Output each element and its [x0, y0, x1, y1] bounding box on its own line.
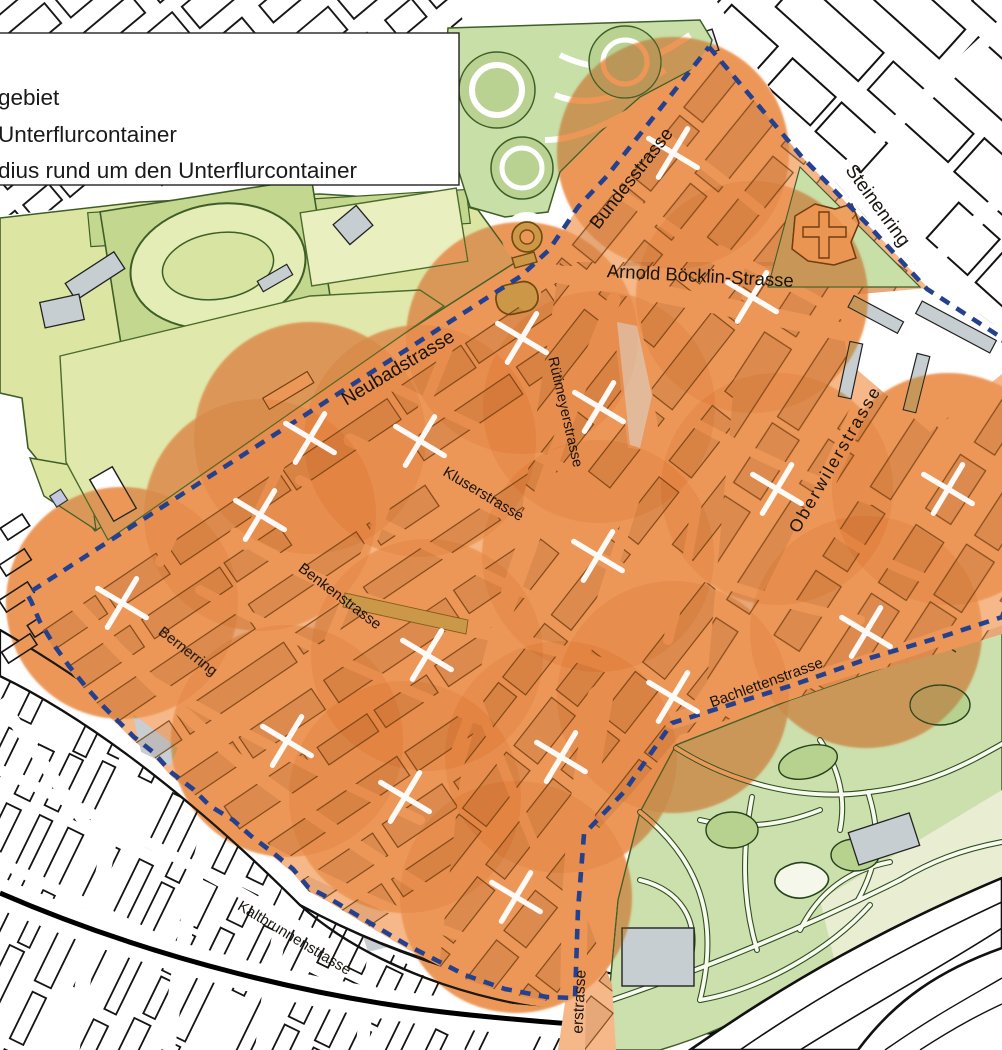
svg-text:erstrasse: erstrasse: [569, 969, 589, 1034]
svg-text:gebiet: gebiet: [0, 85, 60, 110]
svg-text:Unterflurcontainer: Unterflurcontainer: [0, 122, 177, 147]
svg-text:dius rund um den Unterflurcont: dius rund um den Unterflurcontainer: [0, 158, 357, 183]
